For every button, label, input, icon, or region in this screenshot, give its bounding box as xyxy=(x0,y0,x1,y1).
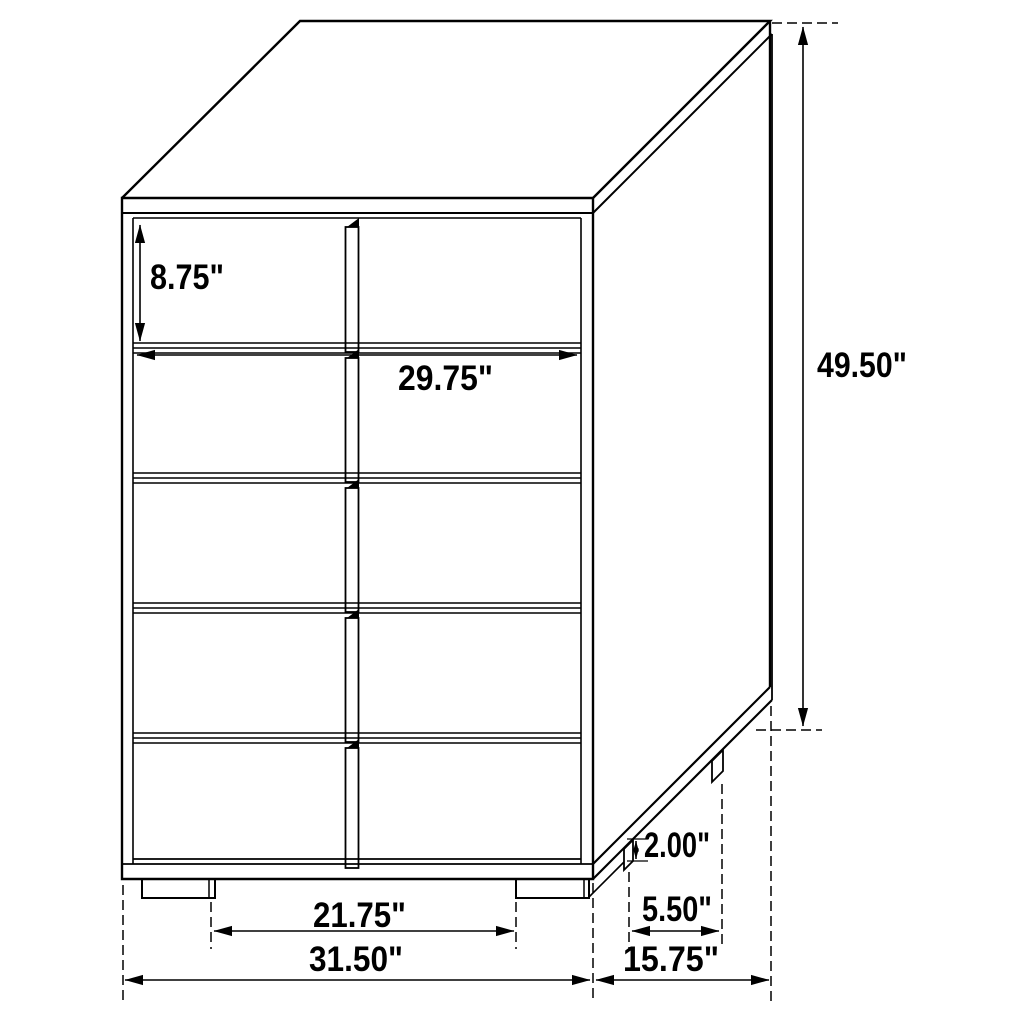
dim-label-overall-height: 49.50" xyxy=(817,346,907,385)
dim-label-overall-depth: 15.75" xyxy=(623,940,719,979)
dim-label-interior-width: 29.75" xyxy=(398,359,493,398)
dim-label-foot-height: 2.00" xyxy=(644,826,710,865)
chest-dimension-drawing: 8.75" 29.75" 49.50" 2.00" 5.50" 21.75" 3… xyxy=(0,0,1024,1024)
dim-label-overall-width: 31.50" xyxy=(309,940,403,979)
chest-body xyxy=(122,21,772,898)
dim-label-side-foot-spacing: 5.50" xyxy=(642,890,712,929)
dim-label-front-foot-spacing: 21.75" xyxy=(313,896,406,935)
foot-front-left xyxy=(142,879,215,898)
front-face xyxy=(122,198,593,879)
dim-label-top-drawer-height: 8.75" xyxy=(150,258,224,297)
dimension-drawing-canvas: 8.75" 29.75" 49.50" 2.00" 5.50" 21.75" 3… xyxy=(0,0,1024,1024)
